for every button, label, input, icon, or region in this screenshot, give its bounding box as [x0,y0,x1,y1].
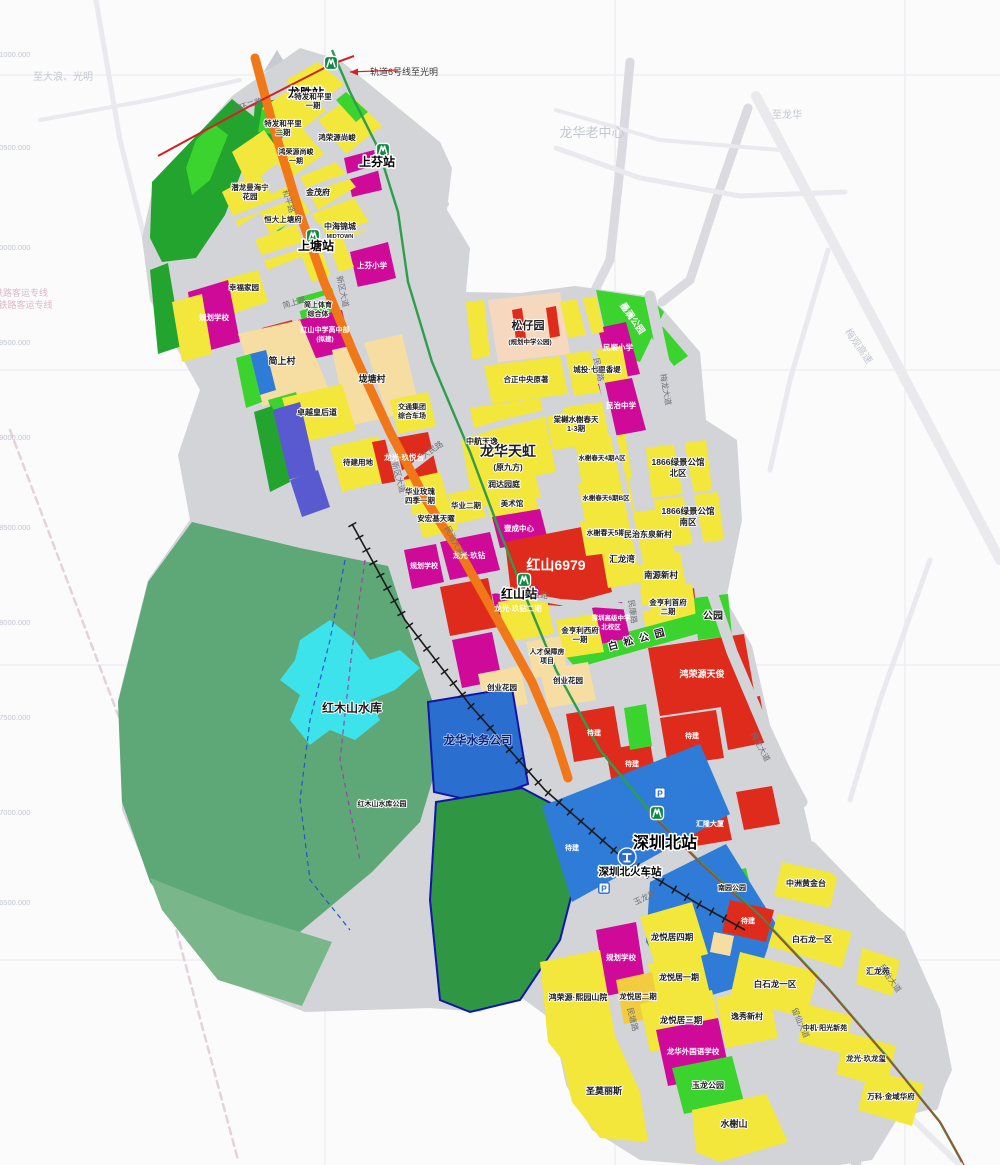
map-label-84: 二期 [661,606,676,616]
map-label-106: 待建 [741,916,756,925]
map-label-113: 规划学校 [606,952,636,962]
map-label-2: 至龙华 [772,108,802,121]
map-label-49: 龙光·玖悦台 [384,452,424,462]
map-label-59: 壹成中心 [504,523,534,533]
map-label-69: 1-3期 [567,423,586,433]
map-label-96: 待建 [587,728,602,737]
map-label-74: 水榭春天6期B区 [582,493,630,502]
map-label-44: 垅塘村 [358,373,385,384]
map-label-9: X=39500.000 [0,338,30,347]
landuse-map: P [0,0,1000,1165]
map-label-102: 红木山水库公园 [358,799,407,808]
map-label-19: 上塘站 [298,238,334,253]
map-label-41: 红山中学高中部 [301,325,350,334]
parking-icon [599,883,609,894]
map-label-14: X=37000.000 [0,808,30,817]
map-label-39: 简上体育 [304,300,332,309]
map-label-52: 安宏基天曜 [417,513,455,523]
map-label-30: 潜龙曼海宁 [231,182,269,192]
map-label-64: 松仔园 [512,318,545,332]
map-label-85: 公园 [703,610,723,622]
map-label-25: 特发和平里 [264,118,302,128]
map-label-8: X=40000.000 [0,243,30,252]
map-label-46: 待建用地 [342,457,373,467]
map-label-78: 南区 [679,517,697,527]
map-label-108: 白石龙一区 [754,979,797,989]
map-label-120: 龙华外国语学校 [667,1046,720,1056]
map-label-119: 逸秀新村 [731,1011,763,1021]
map-label-91: 人才保障房 [530,647,565,656]
map-label-100: 汇隆大厦 [696,819,725,828]
map-label-58: 美术馆 [501,498,524,508]
map-label-98: 待建 [685,731,700,740]
map-label-79: 水榭春天5期 [587,528,626,537]
map-label-77: 1866绿景公馆 [662,506,715,516]
map-label-68: 棠樾水榭春天 [553,414,599,424]
map-label-112: 万科·金域华府 [866,1091,915,1101]
map-label-33: 恒大上塘府 [264,214,302,224]
map-label-42: (拟建) [316,334,333,343]
map-label-47: 交通集团 [398,402,426,411]
map-label-51: 四季一期 [405,495,435,505]
map-label-50: 华业玫瑰 [405,486,435,496]
map-label-99: 待建 [565,843,580,852]
map-label-12: X=38000.000 [0,618,30,627]
map-label-43: 简上村 [268,355,295,366]
map-label-122: 圣莫丽斯 [586,1085,622,1096]
map-label-21: 深圳北站 [633,833,697,852]
map-label-104: 南园公园 [718,883,746,892]
map-label-38: 规划学校 [199,312,229,322]
map-label-83: 金亨利首府 [648,597,687,607]
map-label-70: 民顺小学 [603,342,633,352]
map-label-26: 二期 [276,127,291,137]
metro-station-icon [517,573,530,586]
parking-icon [655,788,665,799]
map-label-37: 幸福家园 [229,282,259,292]
map-label-117: 龙悦居三期 [659,1015,703,1025]
map-label-105: 中洲黄金台 [786,878,826,888]
map-label-36: 上芬小学 [357,260,387,270]
map-label-92: 项目 [540,656,554,665]
map-label-31: 花园 [243,191,258,201]
map-label-6: X=41000.000 [0,50,30,59]
metro-station-icon [324,56,337,69]
map-label-1: 至大浪、光明 [33,70,93,83]
map-label-88: 北校区 [601,622,621,631]
map-label-97: 待建 [625,759,640,768]
map-label-10: X=39000.000 [0,433,30,442]
map-label-76: 北区 [669,468,687,478]
map-label-115: 龙悦居一期 [658,972,699,982]
map-label-90: 一期 [573,634,588,644]
map-label-87: 深圳高级中学 [592,613,632,622]
map-label-13: X=37500.000 [0,713,30,722]
map-label-81: 汇龙湾 [609,554,635,564]
map-label-22: 深圳北火车站 [599,865,662,878]
map-label-56: (原九方) [493,462,523,472]
map-label-34: 中海锦城 [324,221,356,231]
map-label-111: 龙光·玖龙玺 [846,1053,886,1063]
map-label-35: MIDTOWN [327,234,354,240]
map-canvas: P [0,0,1000,1165]
map-label-89: 金亨利西府 [560,625,599,635]
map-label-61: 规划学校 [410,561,439,570]
map-label-24: 一期 [306,100,321,110]
map-label-116: 龙悦居二期 [619,991,657,1001]
map-label-80: 民治东泉新村 [624,529,672,539]
map-label-121: 玉龙公园 [692,1080,724,1090]
map-label-82: 南源新村 [644,570,679,580]
map-label-15: X=36500.000 [0,898,30,907]
map-label-16: 轨道6号线至光明 [370,66,438,77]
map-label-4: 广深铁路客运专线 [0,287,48,298]
map-label-32: 金茂府 [305,187,330,197]
map-label-11: X=38500.000 [0,523,30,532]
map-label-7: X=40500.000 [0,143,30,152]
map-label-53: 华业二期 [451,500,481,510]
map-label-65: (规划中学公园) [508,337,551,346]
map-label-48: 综合车场 [398,411,426,420]
map-label-71: 民治中学 [606,400,636,410]
map-label-75: 1866绿景公馆 [652,457,705,467]
map-label-18: 上芬站 [359,154,395,169]
map-label-3: 梅观高速 [842,326,876,366]
map-label-29: 一期 [289,156,303,165]
map-label-103: 龙华水务公司 [443,733,513,747]
map-label-114: 龙悦居四期 [650,932,694,942]
map-label-55: 龙华天虹 [479,443,536,459]
map-label-40: 综合体 [308,309,330,318]
map-label-93: 创业花园 [486,682,517,692]
map-label-45: 卓越皇后道 [297,407,337,417]
map-label-73: 水榭春天4期A区 [578,453,626,462]
map-label-107: 白石龙一区 [792,934,832,944]
map-label-123: 水榭山 [720,1118,747,1129]
map-label-101: 红木山水库 [322,700,382,715]
map-label-0: 龙华老中心 [559,125,624,140]
map-label-95: 鸿荣源天俊 [679,668,724,679]
map-label-66: 合正中央原著 [504,374,549,384]
map-label-23: 特发和平里 [294,91,332,101]
map-label-63: 龙光·玖钻二期 [494,603,542,613]
map-label-62: 红山6979 [526,557,585,573]
metro-station-icon [650,806,663,819]
map-label-118: 鸿荣源·熙园山院 [549,992,608,1002]
map-label-27: 鸿荣源尚峻 [318,132,356,142]
map-label-5: 广深港铁路客运专线 [0,299,53,310]
map-label-94: 创业花园 [552,675,583,685]
map-label-28: 鸿荣源尚峻 [279,147,314,156]
map-label-57: 润达园庭 [488,479,521,489]
